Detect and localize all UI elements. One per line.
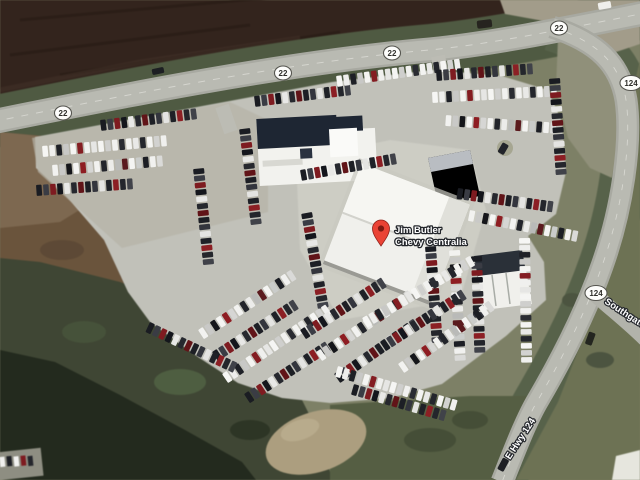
svg-text:22: 22 bbox=[59, 109, 68, 118]
route-22-shield: 22 bbox=[384, 46, 401, 60]
entrance-west bbox=[222, 106, 231, 132]
svg-text:124: 124 bbox=[589, 289, 603, 298]
route-22-shield: 22 bbox=[551, 21, 568, 35]
route-124-shield: 124 bbox=[620, 76, 640, 91]
route-22-shield: 22 bbox=[55, 106, 72, 120]
svg-text:124: 124 bbox=[624, 79, 638, 88]
route-124-shield: 124 bbox=[585, 286, 607, 301]
place-name-line2: Chevy Centralia bbox=[395, 237, 468, 248]
place-name-line1: Jim Butler bbox=[395, 225, 442, 236]
svg-text:22: 22 bbox=[279, 69, 288, 78]
route-22-shield: 22 bbox=[275, 66, 292, 80]
dark-roof bbox=[256, 115, 337, 149]
svg-text:22: 22 bbox=[388, 49, 397, 58]
satellite-map-canvas[interactable]: 22 22 22 22 124 124 Southgate E Hwy 124 bbox=[0, 0, 640, 480]
satellite-image: 22 22 22 22 124 124 Southgate E Hwy 124 bbox=[0, 0, 640, 480]
corner-lot bbox=[0, 448, 44, 480]
svg-text:22: 22 bbox=[555, 24, 564, 33]
